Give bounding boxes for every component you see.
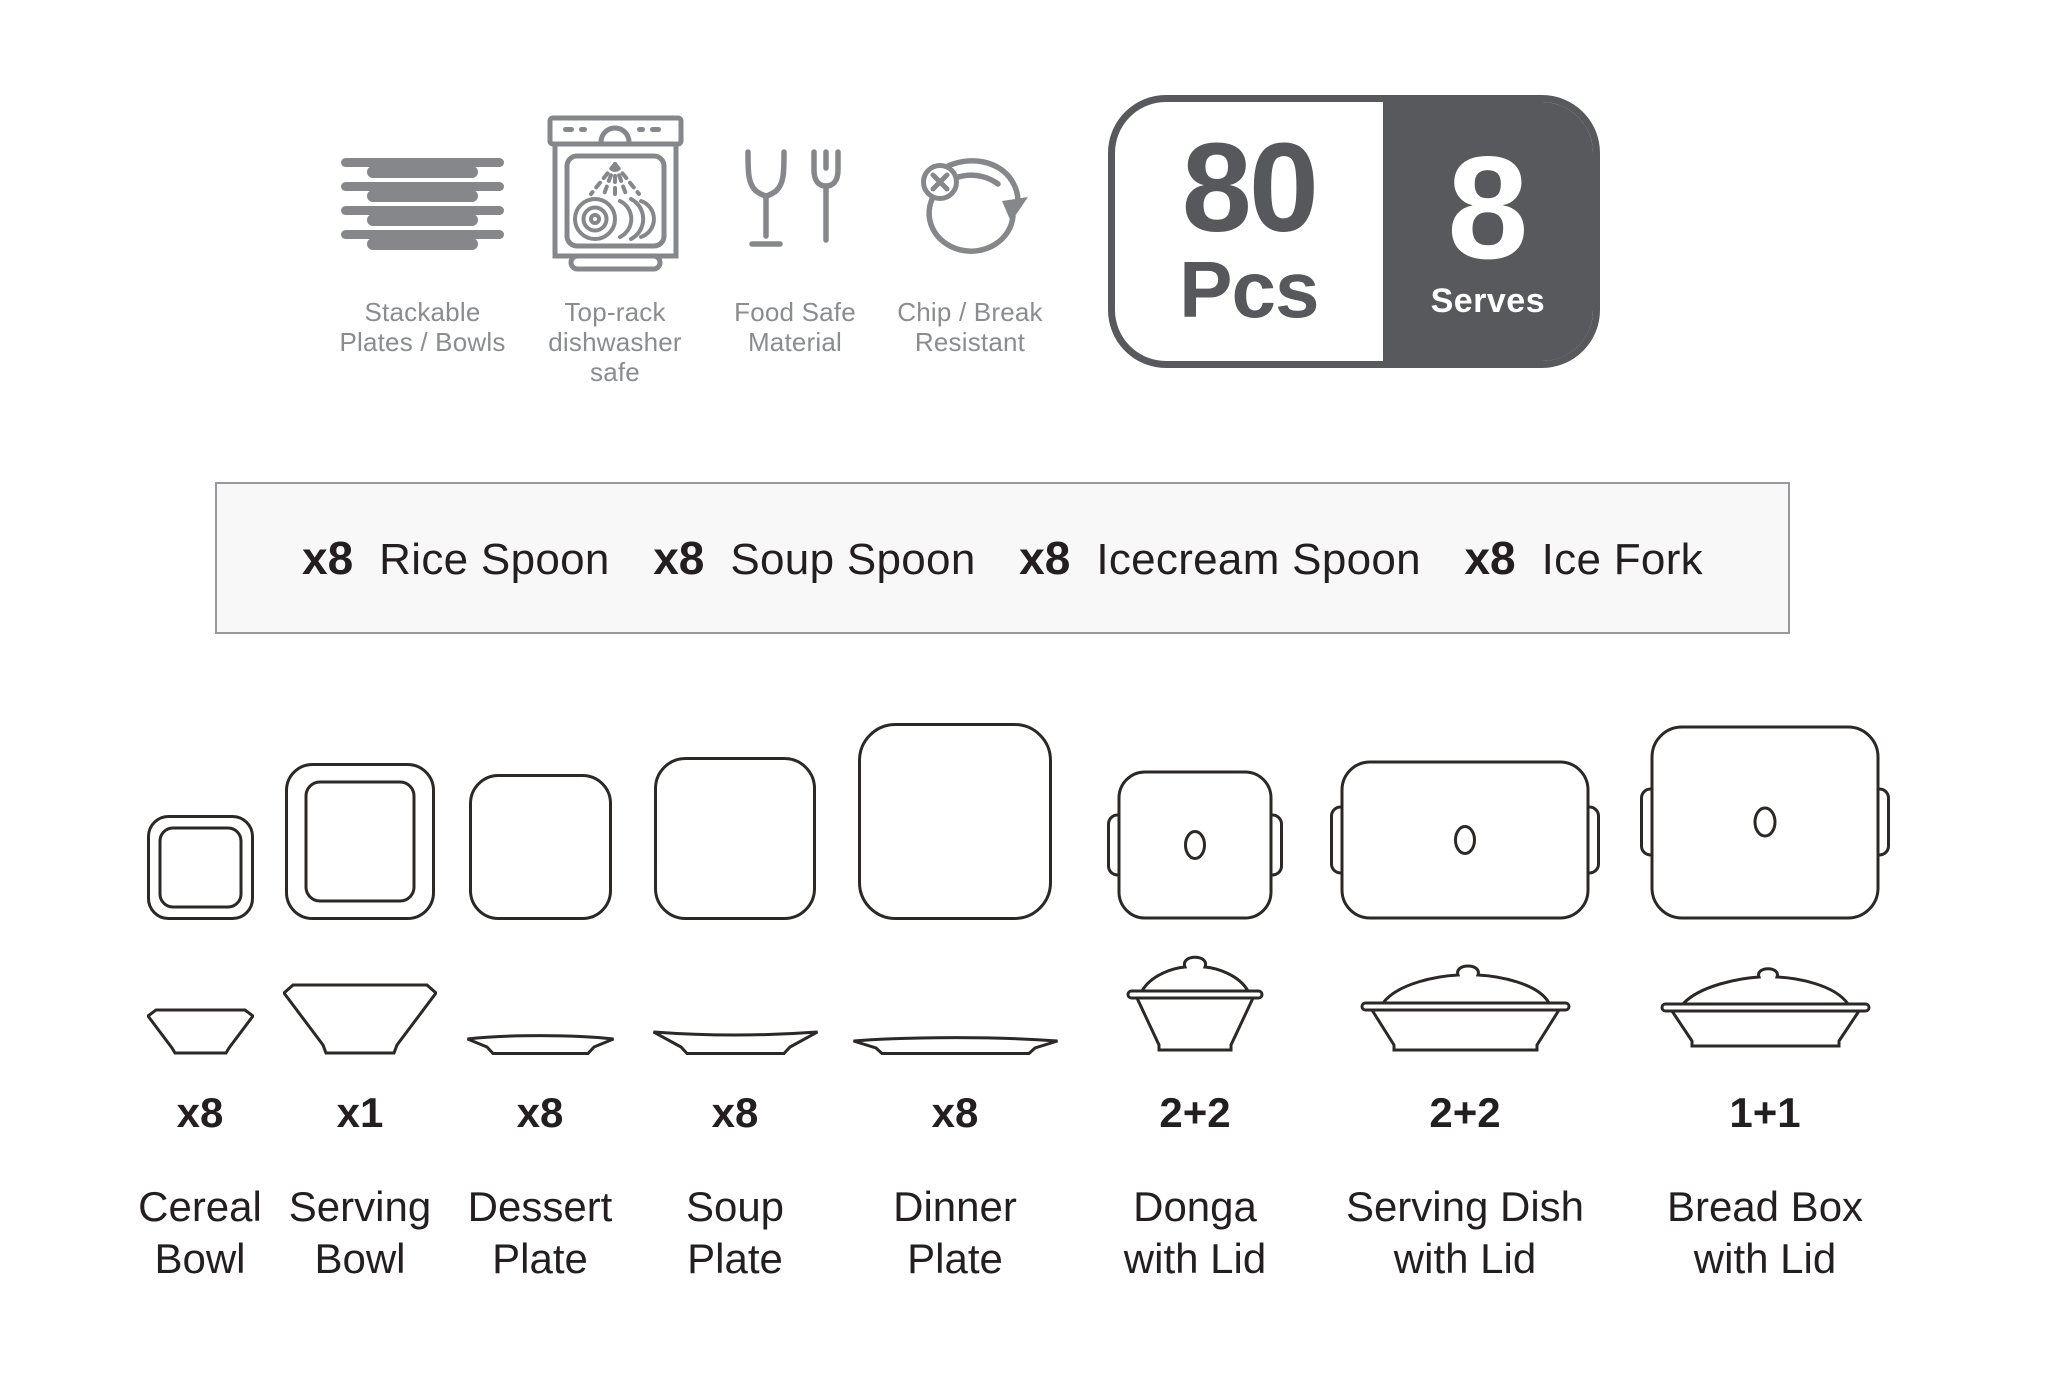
bowl-top-icon: [147, 815, 254, 920]
cereal-bowl-side-view: [147, 920, 254, 1055]
product-name: Dessert Plate: [468, 1181, 613, 1285]
cutlery-item-icecream-spoon: x8 Icecream Spoon: [1019, 531, 1421, 585]
product-donga: 2+2 Donga with Lid: [1075, 660, 1315, 1285]
product-name: Soup Plate: [686, 1181, 784, 1285]
cereal-bowl-top-view: [147, 660, 254, 920]
soup-plate-top-view: [654, 660, 816, 920]
plate-side-icon: [467, 1034, 614, 1055]
feature-label: Stackable Plates / Bowls: [339, 297, 505, 357]
bowl-top-icon: [285, 763, 435, 920]
plate-top-icon: [858, 723, 1052, 920]
serving-dish-top-view: [1330, 660, 1600, 920]
stacked-plates-icon: [341, 158, 504, 253]
feature-label-line1: Top-rack: [525, 297, 705, 327]
dishwasher-icon-box: [547, 95, 684, 273]
cutlery-qty: x8: [1464, 531, 1515, 585]
cutlery-qty: x8: [302, 531, 353, 585]
cutlery-item-ice-fork: x8 Ice Fork: [1464, 531, 1703, 585]
chip-break-icon: [912, 155, 1029, 261]
product-qty: 2+2: [1429, 1089, 1500, 1137]
feature-food-safe: Food Safe Material: [715, 95, 875, 387]
cutlery-name: Icecream Spoon: [1096, 535, 1421, 585]
badge-pieces-panel: 80 Pcs: [1115, 102, 1383, 361]
feature-label-line1: Stackable: [339, 297, 505, 327]
product-qty: 2+2: [1159, 1089, 1230, 1137]
feature-label-line2: Material: [734, 327, 856, 357]
product-qty: x8: [932, 1089, 979, 1137]
feature-label-line2: Plates / Bowls: [339, 327, 505, 357]
food-safe-icon-box: [740, 95, 851, 273]
food-safe-icon: [740, 148, 851, 253]
product-name-line2: with Lid: [1124, 1233, 1266, 1285]
cutlery-name: Ice Fork: [1542, 535, 1703, 585]
features-row: Stackable Plates / Bowls: [330, 95, 1055, 387]
cutlery-name: Rice Spoon: [379, 535, 609, 585]
product-name-line1: Serving: [289, 1181, 431, 1233]
pieces-count: 80: [1182, 133, 1316, 244]
product-name-line1: Dessert: [468, 1181, 613, 1233]
dinner-set-infographic: Stackable Plates / Bowls: [0, 0, 2048, 1389]
bowl-side-icon: [147, 1008, 254, 1055]
product-name: Serving Bowl: [289, 1181, 431, 1285]
feature-dishwasher-safe: Top-rack dishwasher safe: [525, 95, 705, 387]
feature-chip-break: Chip / Break Resistant: [885, 95, 1055, 387]
pieces-serves-badge: 80 Pcs 8 Serves: [1108, 95, 1600, 368]
feature-label: Food Safe Material: [734, 297, 856, 357]
product-dinner-plate: x8 Dinner Plate: [835, 660, 1075, 1285]
soup-plate-side-view: [653, 920, 818, 1055]
feature-label: Top-rack dishwasher safe: [525, 297, 705, 387]
product-bread-box: 1+1 Bread Box with Lid: [1615, 660, 1915, 1285]
plate-top-icon: [469, 774, 612, 920]
plate-side-icon: [853, 1036, 1058, 1055]
product-qty: x1: [337, 1089, 384, 1137]
dishwasher-icon: [547, 115, 684, 273]
cutlery-qty: x8: [1019, 531, 1070, 585]
cutlery-item-rice-spoon: x8 Rice Spoon: [302, 531, 610, 585]
serves-count: 8: [1447, 142, 1528, 273]
donga-top-view: [1107, 660, 1283, 920]
serving-dish-side-view: [1358, 920, 1573, 1055]
feature-stackable: Stackable Plates / Bowls: [330, 95, 515, 387]
product-name-line2: with Lid: [1346, 1233, 1584, 1285]
dinner-plate-top-view: [858, 660, 1052, 920]
products-row: x8 Cereal Bowl x1 Serving Bo: [125, 660, 1915, 1285]
product-serving-bowl: x1 Serving Bowl: [275, 660, 445, 1285]
lidded-dish-top-icon: [1640, 725, 1890, 920]
plate-side-icon: [653, 1030, 818, 1055]
feature-label-line2: Resistant: [897, 327, 1042, 357]
stacked-plates-icon-box: [341, 95, 504, 273]
bowl-side-icon: [283, 983, 437, 1055]
product-qty: 1+1: [1729, 1089, 1800, 1137]
cutlery-item-soup-spoon: x8 Soup Spoon: [653, 531, 975, 585]
product-soup-plate: x8 Soup Plate: [635, 660, 835, 1285]
bread-box-top-view: [1640, 660, 1890, 920]
product-name: Serving Dish with Lid: [1346, 1181, 1584, 1285]
feature-label: Chip / Break Resistant: [897, 297, 1042, 357]
serves-label: Serves: [1431, 282, 1546, 321]
product-name: Cereal Bowl: [138, 1181, 262, 1285]
serving-bowl-top-view: [285, 660, 435, 920]
product-cereal-bowl: x8 Cereal Bowl: [125, 660, 275, 1285]
product-name-line2: Plate: [686, 1233, 784, 1285]
lidded-dish-top-icon: [1107, 770, 1283, 920]
product-serving-dish: 2+2 Serving Dish with Lid: [1315, 660, 1615, 1285]
product-name-line2: with Lid: [1667, 1233, 1863, 1285]
feature-label-line1: Food Safe: [734, 297, 856, 327]
product-name-line1: Soup: [686, 1181, 784, 1233]
dinner-plate-side-view: [853, 920, 1058, 1055]
product-name-line1: Donga: [1124, 1181, 1266, 1233]
product-name-line1: Dinner: [893, 1181, 1017, 1233]
serving-bowl-side-view: [283, 920, 437, 1055]
cutlery-qty: x8: [653, 531, 704, 585]
cutlery-name: Soup Spoon: [730, 535, 975, 585]
lidded-dish-side-icon: [1658, 957, 1873, 1055]
product-name: Bread Box with Lid: [1667, 1181, 1863, 1285]
product-name-line2: Bowl: [289, 1233, 431, 1285]
lidded-dish-side-icon: [1125, 947, 1265, 1055]
cutlery-strip: x8 Rice Spoon x8 Soup Spoon x8 Icecream …: [215, 482, 1790, 634]
product-name-line1: Cereal: [138, 1181, 262, 1233]
pieces-unit: Pcs: [1179, 250, 1318, 330]
bread-box-side-view: [1658, 920, 1873, 1055]
product-qty: x8: [517, 1089, 564, 1137]
chip-break-icon-box: [912, 95, 1029, 273]
product-name-line1: Serving Dish: [1346, 1181, 1584, 1233]
product-qty: x8: [177, 1089, 224, 1137]
product-name-line2: Plate: [893, 1233, 1017, 1285]
dessert-plate-top-view: [469, 660, 612, 920]
product-name-line1: Bread Box: [1667, 1181, 1863, 1233]
plate-top-icon: [654, 757, 816, 920]
product-name-line2: Bowl: [138, 1233, 262, 1285]
dessert-plate-side-view: [467, 920, 614, 1055]
lidded-dish-side-icon: [1358, 953, 1573, 1055]
product-name-line2: Plate: [468, 1233, 613, 1285]
donga-side-view: [1125, 920, 1265, 1055]
product-dessert-plate: x8 Dessert Plate: [445, 660, 635, 1285]
product-name: Donga with Lid: [1124, 1181, 1266, 1285]
product-name: Dinner Plate: [893, 1181, 1017, 1285]
product-qty: x8: [712, 1089, 759, 1137]
lidded-dish-top-icon: [1330, 760, 1600, 920]
feature-label-line2: dishwasher safe: [525, 327, 705, 387]
feature-label-line1: Chip / Break: [897, 297, 1042, 327]
badge-serves-panel: 8 Serves: [1383, 102, 1593, 361]
